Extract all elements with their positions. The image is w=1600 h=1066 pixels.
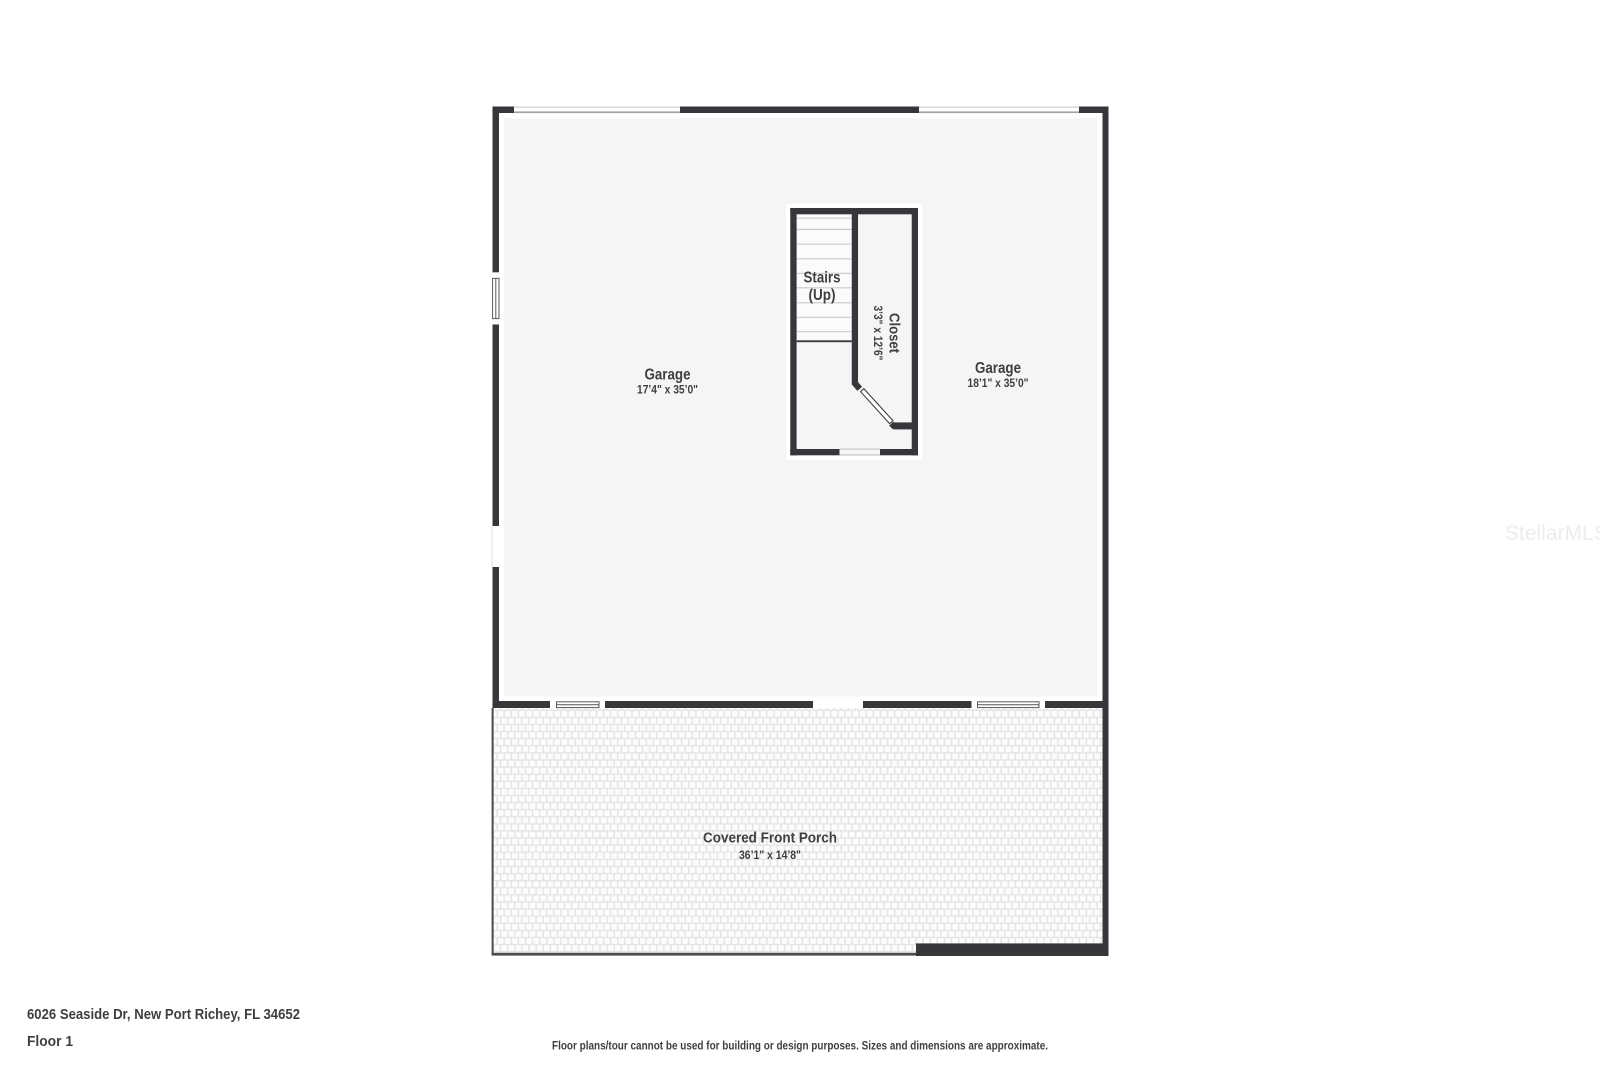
svg-text:3’3" x 12’6": 3’3" x 12’6": [871, 306, 885, 361]
svg-text:Garage: Garage: [975, 360, 1021, 377]
svg-text:(Up): (Up): [809, 287, 836, 304]
svg-text:36’1" x 14’8": 36’1" x 14’8": [739, 848, 801, 862]
svg-text:17’4" x 35’0": 17’4" x 35’0": [637, 383, 698, 397]
svg-text:Garage: Garage: [645, 367, 691, 384]
svg-text:Closet: Closet: [886, 313, 903, 353]
svg-text:StellarMLS: StellarMLS: [1505, 522, 1600, 545]
svg-text:Floor plans/tour cannot be use: Floor plans/tour cannot be used for buil…: [552, 1041, 1048, 1053]
svg-text:Covered Front Porch: Covered Front Porch: [703, 831, 837, 847]
svg-text:Floor 1: Floor 1: [27, 1033, 73, 1050]
svg-text:6026 Seaside Dr, New Port Rich: 6026 Seaside Dr, New Port Richey, FL 346…: [27, 1006, 300, 1023]
svg-text:18’1" x 35’0": 18’1" x 35’0": [968, 376, 1029, 390]
svg-text:Stairs: Stairs: [804, 270, 841, 287]
